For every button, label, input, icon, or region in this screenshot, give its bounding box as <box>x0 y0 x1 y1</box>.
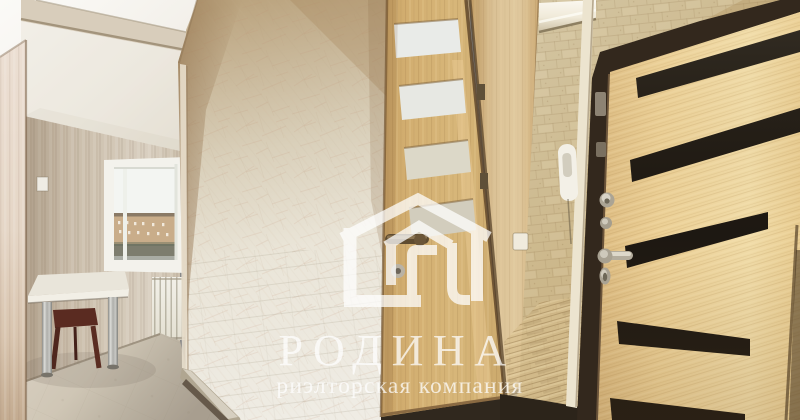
svg-text:РОДИНА: РОДИНА <box>279 326 516 375</box>
svg-text:риэлторская компания: риэлторская компания <box>276 373 523 399</box>
